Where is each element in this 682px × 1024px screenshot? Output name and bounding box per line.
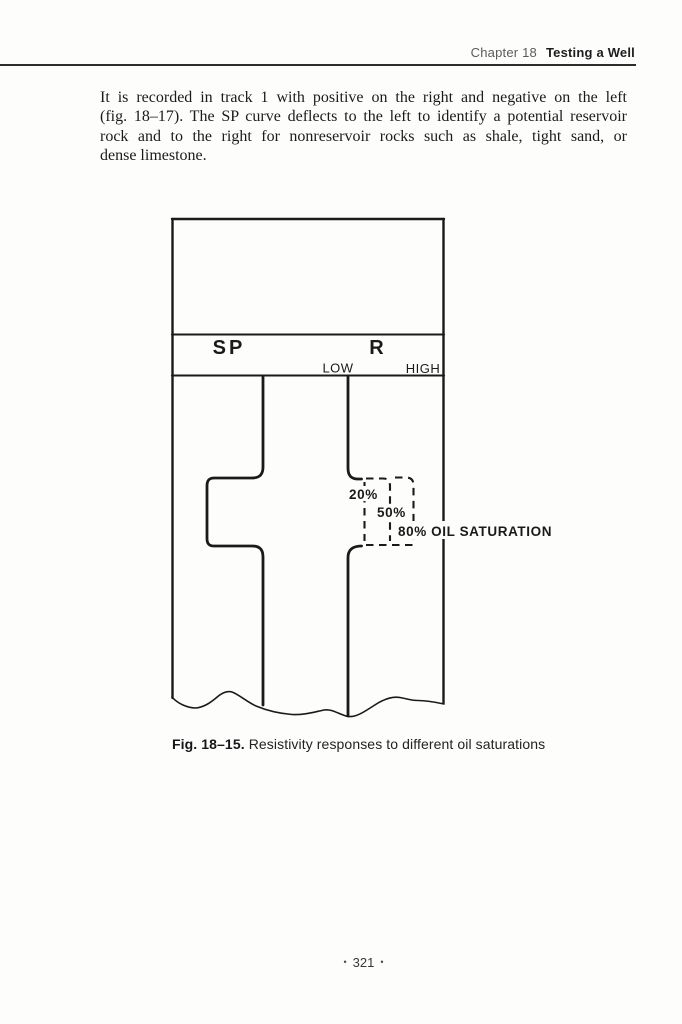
sp-curve bbox=[207, 377, 263, 705]
saturation-80-label: 80% OIL SATURATION bbox=[398, 524, 552, 539]
resistivity-curve-lower bbox=[348, 546, 362, 716]
resistivity-track-label: R bbox=[369, 337, 386, 359]
well-log-figure: SP R LOW HIGH 20% 50% 80% OIL SATURATION bbox=[0, 0, 682, 1024]
folio-bullet-left: • bbox=[343, 957, 346, 967]
resistivity-curve-upper bbox=[348, 377, 362, 479]
figure-caption-ref: Fig. 18–15. bbox=[172, 736, 245, 752]
sp-track-label: SP bbox=[213, 337, 246, 359]
folio-bullet-right: • bbox=[380, 957, 383, 967]
saturation-20-label: 20% bbox=[349, 487, 378, 502]
figure-caption: Fig. 18–15. Resistivity responses to dif… bbox=[172, 736, 545, 752]
book-page: Chapter 18Testing a Well It is recorded … bbox=[0, 0, 682, 1024]
torn-edge-wave bbox=[172, 692, 444, 717]
high-scale-label: HIGH bbox=[406, 361, 441, 376]
figure-caption-text: Resistivity responses to different oil s… bbox=[249, 736, 546, 752]
folio-number: 321 bbox=[353, 955, 375, 970]
saturation-50-label: 50% bbox=[377, 505, 406, 520]
page-number: •321• bbox=[100, 955, 627, 970]
low-scale-label: LOW bbox=[322, 361, 353, 376]
